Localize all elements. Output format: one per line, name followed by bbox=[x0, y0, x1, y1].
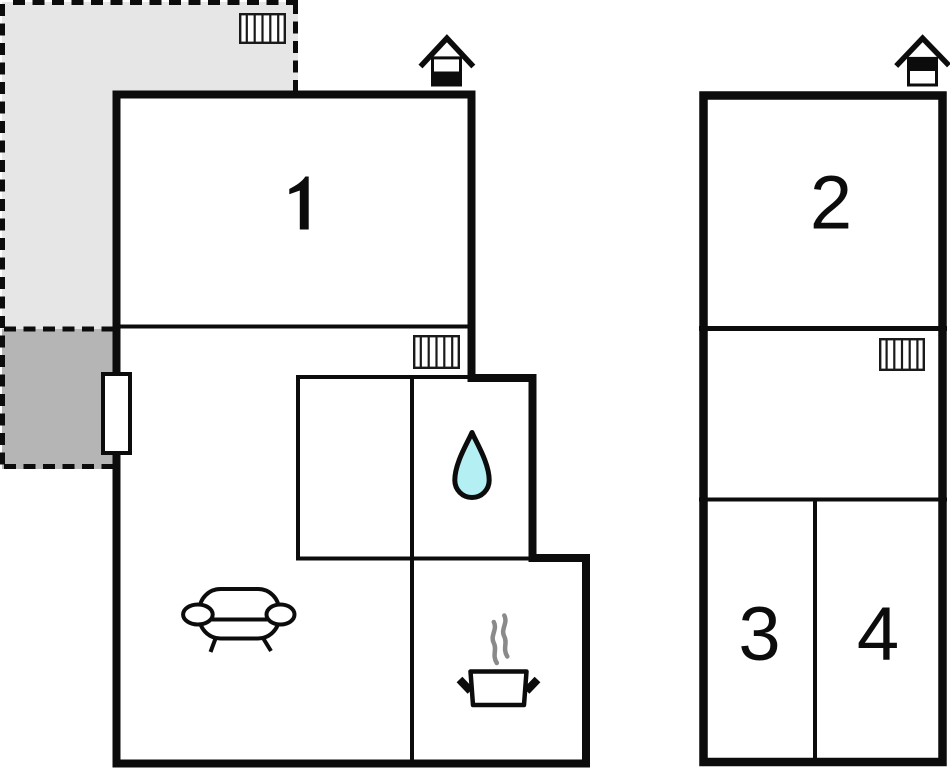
svg-text:3: 3 bbox=[738, 592, 780, 677]
svg-text:2: 2 bbox=[810, 161, 852, 246]
svg-text:4: 4 bbox=[857, 592, 899, 677]
